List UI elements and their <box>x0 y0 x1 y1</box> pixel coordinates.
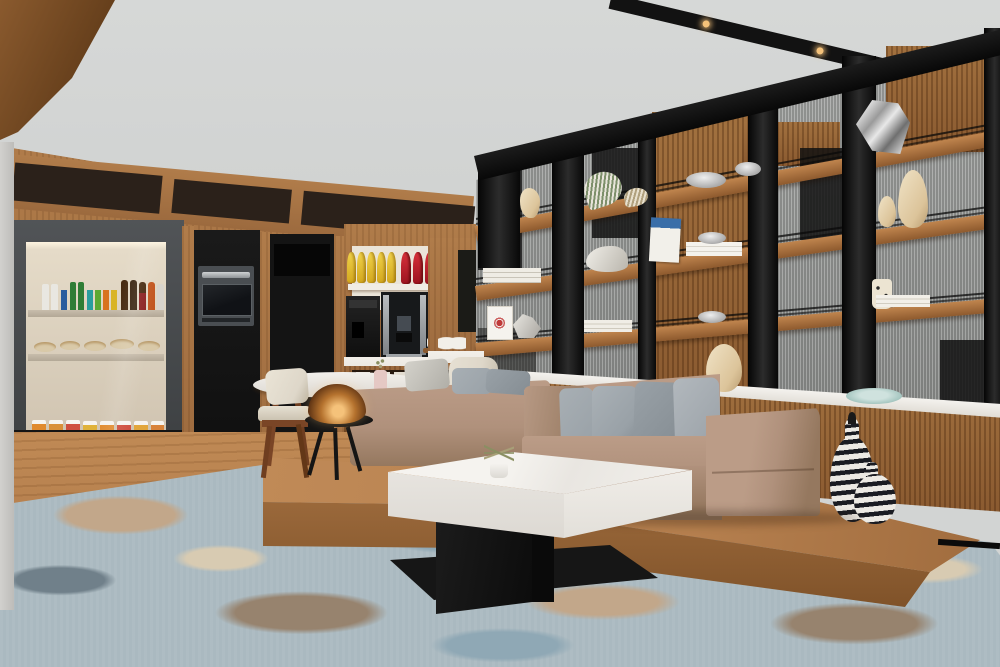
chip-bag-yellow-2 <box>357 252 366 283</box>
decor-plate-teal <box>846 388 902 404</box>
display-case-interior <box>26 242 166 446</box>
decor-vase-small <box>878 196 896 227</box>
decor-art-frame <box>487 306 513 340</box>
recessed-light-1 <box>702 20 710 28</box>
oven-handle <box>202 272 250 278</box>
oven-window <box>202 284 252 316</box>
chip-bag-yellow-3 <box>367 252 376 283</box>
clerestory-panel-1 <box>12 163 163 214</box>
chair-back-cushion <box>265 368 309 406</box>
chair-seat <box>258 406 312 421</box>
dispenser-spout <box>352 322 364 338</box>
decor-books-right <box>876 295 930 307</box>
return-pillow-1 <box>404 358 450 392</box>
shelf-post-2 <box>552 150 584 394</box>
decor-bird-sculpture <box>586 246 628 272</box>
decor-books-flat-left <box>483 268 541 283</box>
table-vase-sprigs <box>374 358 387 370</box>
snack-display-case <box>8 220 184 464</box>
chip-bag-red-1 <box>401 252 411 284</box>
decor-bowl-on-books <box>698 232 726 244</box>
chip-bag-yellow-4 <box>377 252 386 283</box>
clerestory-panel-2 <box>171 179 292 224</box>
case-glass-reflection <box>26 242 166 446</box>
recessed-light-2 <box>816 47 824 55</box>
machine-silver-right <box>420 295 426 355</box>
shelf-post-6 <box>984 28 1000 415</box>
machine-spout <box>396 333 412 342</box>
striped-vase-tip <box>848 412 856 424</box>
water-dispenser <box>346 296 380 360</box>
chip-bag-yellow-5 <box>387 252 396 283</box>
decor-sculpture-cream <box>520 188 540 218</box>
chip-bag-red-2 <box>413 252 423 284</box>
decor-magazine <box>649 217 681 263</box>
striped-vase-small <box>854 474 896 524</box>
chip-bag-yellow-1 <box>347 252 356 283</box>
oven-control-strip <box>202 318 250 322</box>
decor-bowl-silver-2 <box>735 162 761 176</box>
cabinet-recess <box>274 244 330 276</box>
decor-bowl-silver-3 <box>698 311 726 323</box>
shelf-post-4 <box>748 100 778 402</box>
table-plant-pot <box>490 464 508 478</box>
lounge-photo <box>0 0 1000 667</box>
shelf-post-1 <box>478 168 520 268</box>
dispenser-vent <box>349 300 377 308</box>
machine-silver-left <box>383 295 389 355</box>
shelf-post-3 <box>638 126 656 398</box>
decor-bowl-silver-1 <box>686 172 726 188</box>
decor-books-flat-mid <box>584 320 632 332</box>
machine-screen <box>397 316 411 331</box>
table-pink-vase <box>374 370 387 391</box>
sofa-right-arm <box>706 404 820 516</box>
wall-oven <box>198 266 254 326</box>
mid-cups <box>438 333 466 350</box>
decor-book-stack-1 <box>686 242 742 256</box>
wall-edge-strip <box>0 142 14 610</box>
art-red-print <box>493 315 506 331</box>
coffee-machine <box>381 292 428 360</box>
table-plant-leaves <box>484 440 514 466</box>
